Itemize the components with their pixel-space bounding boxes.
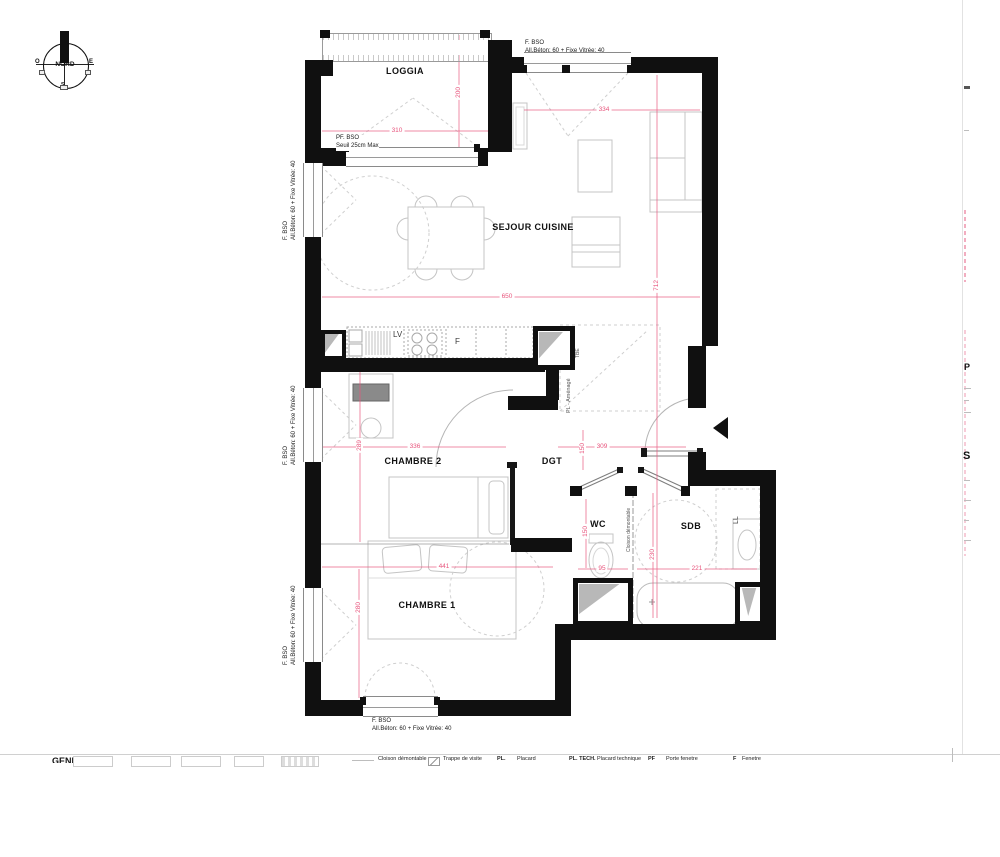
legend-swatch — [131, 756, 171, 767]
edge-mark — [964, 540, 971, 541]
dim-chambre2-width: 336 — [408, 443, 423, 450]
legend-cloison-line-icon — [352, 760, 374, 761]
edge-mark — [964, 500, 971, 501]
dishwasher-label: LV — [393, 330, 402, 339]
window-bottom-hinge-2 — [434, 697, 440, 705]
window-top-hinge-1 — [521, 65, 527, 73]
room-label-sejour-cuisine: SEJOUR CUISINE — [492, 222, 574, 232]
note-line: All.Béton: 60 + Fixe Vitrée: 40 — [291, 161, 299, 240]
legend-swatch — [73, 756, 113, 767]
compass-north-label: NORD — [55, 61, 74, 68]
legend-swatch-hatched — [281, 756, 319, 767]
edge-mark — [964, 388, 971, 389]
legend-item-cloison: Cloison démontable — [378, 756, 427, 762]
legend-trappe-icon — [428, 757, 440, 766]
room-label-dgt: DGT — [542, 456, 562, 466]
tbe-label: TBE — [575, 348, 581, 358]
wall-wc-nub-1 — [570, 486, 582, 496]
wall-bottom-seg1 — [305, 700, 365, 716]
edge-mark — [964, 520, 969, 521]
sdb-trappe-triangle-left-icon — [579, 584, 623, 616]
north-compass: NORD O E S — [36, 30, 94, 90]
placard-amenage-label: PL - Aménagé — [566, 378, 572, 413]
wall-entry-upper — [688, 346, 706, 408]
note-loggia-door: PF. BSO Seuil 25cm Max — [336, 135, 379, 151]
room-label-wc: WC — [590, 519, 606, 529]
edge-mark — [964, 412, 971, 413]
room-label-chambre1: CHAMBRE 1 — [398, 600, 455, 610]
note-line: F. BSO — [525, 40, 604, 48]
cloison-demontable-label: Cloison démontable — [626, 508, 632, 552]
edge-rule — [962, 0, 963, 754]
dim-chambre2-depth: 289 — [356, 438, 363, 453]
note-bottom-window: F. BSO All.Béton: 60 + Fixe Vitrée: 40 — [372, 718, 451, 734]
wall-bottom-seg2 — [437, 700, 571, 716]
room-label-sdb: SDB — [681, 521, 701, 531]
note-line: All.Béton: 60 + Fixe Vitrée: 40 — [525, 48, 604, 56]
legend-item-porte-fenetre: Porte fenetre — [666, 756, 698, 762]
placard-technique-box — [533, 326, 575, 370]
window-top-hinge-3 — [627, 65, 633, 73]
note-line: Seuil 25cm Max — [336, 143, 379, 151]
edge-mark — [964, 400, 969, 401]
entry-arrow-icon — [713, 417, 728, 439]
sdb-trappe-triangle-right-icon — [741, 588, 757, 616]
sdb-trappe-box-left — [573, 578, 633, 626]
wall-loggia-corner — [305, 60, 333, 76]
room-label-loggia: LOGGIA — [386, 66, 424, 76]
window-left-2 — [303, 388, 323, 462]
floor-plan-sheet: LOGGIA SEJOUR CUISINE CHAMBRE 2 DGT WC S… — [0, 0, 1000, 857]
legend-abbr-pl: PL. — [497, 756, 506, 762]
legend-divider — [0, 754, 1000, 755]
note-top-window: F. BSO All.Béton: 60 + Fixe Vitrée: 40 — [525, 40, 604, 56]
placard-technique-triangle-icon — [539, 332, 565, 360]
note-line: All.Béton: 60 + Fixe Vitrée: 40 — [372, 726, 451, 734]
note-line: F. BSO — [283, 386, 291, 465]
legend-item-placard-technique: Placard technique — [597, 756, 641, 762]
dim-sdb-width: 221 — [690, 565, 705, 572]
note-line: F. BSO — [372, 718, 451, 726]
wall-wc-nub-3 — [681, 486, 690, 496]
window-left-3 — [303, 588, 323, 662]
railing-end-left — [320, 30, 330, 38]
legend-item-fenetre: Fenetre — [742, 756, 761, 762]
window-bottom — [363, 696, 438, 717]
sdb-trappe-box-right — [735, 582, 765, 626]
trappe-triangle-icon — [325, 334, 340, 354]
loggia-railing — [322, 33, 492, 62]
note-line: All.Béton: 60 + Fixe Vitrée: 40 — [291, 386, 299, 465]
note-line: All.Béton: 60 + Fixe Vitrée: 40 — [291, 586, 299, 665]
edge-mark — [964, 86, 970, 89]
window-top-hinge-2 — [562, 65, 570, 73]
dim-chambre1-width: 441 — [437, 563, 452, 570]
wall-wc-nub-2 — [625, 486, 637, 496]
edge-mark — [964, 480, 970, 481]
legend-abbr-pl-tech: PL. TECH. — [569, 756, 596, 762]
loggia-door-hinge-2 — [474, 144, 480, 152]
dim-wc-width: 95 — [596, 565, 607, 572]
wall-chambre-doors — [511, 538, 572, 552]
note-left-window-3: F. BSO All.Béton: 60 + Fixe Vitrée: 40 — [283, 586, 299, 665]
dim-sejour-width: 650 — [500, 293, 515, 300]
compass-tick — [39, 70, 45, 75]
note-line: F. BSO — [283, 161, 291, 240]
legend-swatch — [181, 756, 221, 767]
wall-left-seg3 — [305, 462, 321, 588]
dim-dgt-depth: 150 — [579, 441, 586, 456]
lave-linge-label: LL — [733, 516, 740, 524]
dim-wc-depth: 150 — [582, 524, 589, 539]
legend-swatch — [234, 756, 264, 767]
dim-sdb-depth: 230 — [649, 547, 656, 562]
edge-pink-fragment — [964, 210, 966, 282]
compass-west-label: O — [35, 59, 40, 65]
legend-abbr-f: F — [733, 756, 736, 762]
window-bottom-hinge-1 — [360, 697, 366, 705]
edge-text-s: S — [963, 450, 970, 462]
dim-dgt-width: 309 — [595, 443, 610, 450]
edge-mark — [952, 748, 953, 762]
legend-item-trappe: Trappe de visite — [443, 756, 482, 762]
dim-loggia-width: 310 — [390, 127, 405, 134]
edge-text-p: P — [964, 362, 970, 372]
dim-apartment-depth: 712 — [653, 278, 660, 293]
legend-abbr-pf: PF — [648, 756, 655, 762]
wall-sdb-bottom — [555, 624, 776, 640]
compass-tick — [60, 85, 68, 90]
note-line: F. BSO — [283, 586, 291, 665]
note-left-window-2: F. BSO All.Béton: 60 + Fixe Vitrée: 40 — [283, 386, 299, 465]
note-line: PF. BSO — [336, 135, 379, 143]
railing-end-right — [480, 30, 490, 38]
wall-dgt-jog — [508, 396, 558, 410]
edge-mark — [964, 130, 969, 131]
wall-entry-lower — [688, 452, 706, 472]
fridge-label: F — [455, 337, 460, 346]
wall-loggia-right — [488, 40, 512, 152]
compass-needle-icon — [60, 31, 69, 63]
note-left-window-1: F. BSO All.Béton: 60 + Fixe Vitrée: 40 — [283, 161, 299, 240]
compass-tick — [85, 70, 91, 75]
room-label-chambre2: CHAMBRE 2 — [384, 456, 441, 466]
wall-kitchen — [321, 358, 545, 372]
compass-east-label: E — [89, 59, 93, 65]
dim-loggia-depth: 200 — [455, 85, 462, 100]
legend-item-placard: Placard — [517, 756, 536, 762]
window-left-1 — [303, 163, 323, 237]
dim-chambre1-depth: 280 — [355, 600, 362, 615]
wall-left-seg2 — [305, 237, 321, 388]
wall-right-upper — [702, 57, 718, 346]
dim-sejour-top: 334 — [597, 106, 612, 113]
trappe-box-kitchen — [321, 330, 346, 360]
